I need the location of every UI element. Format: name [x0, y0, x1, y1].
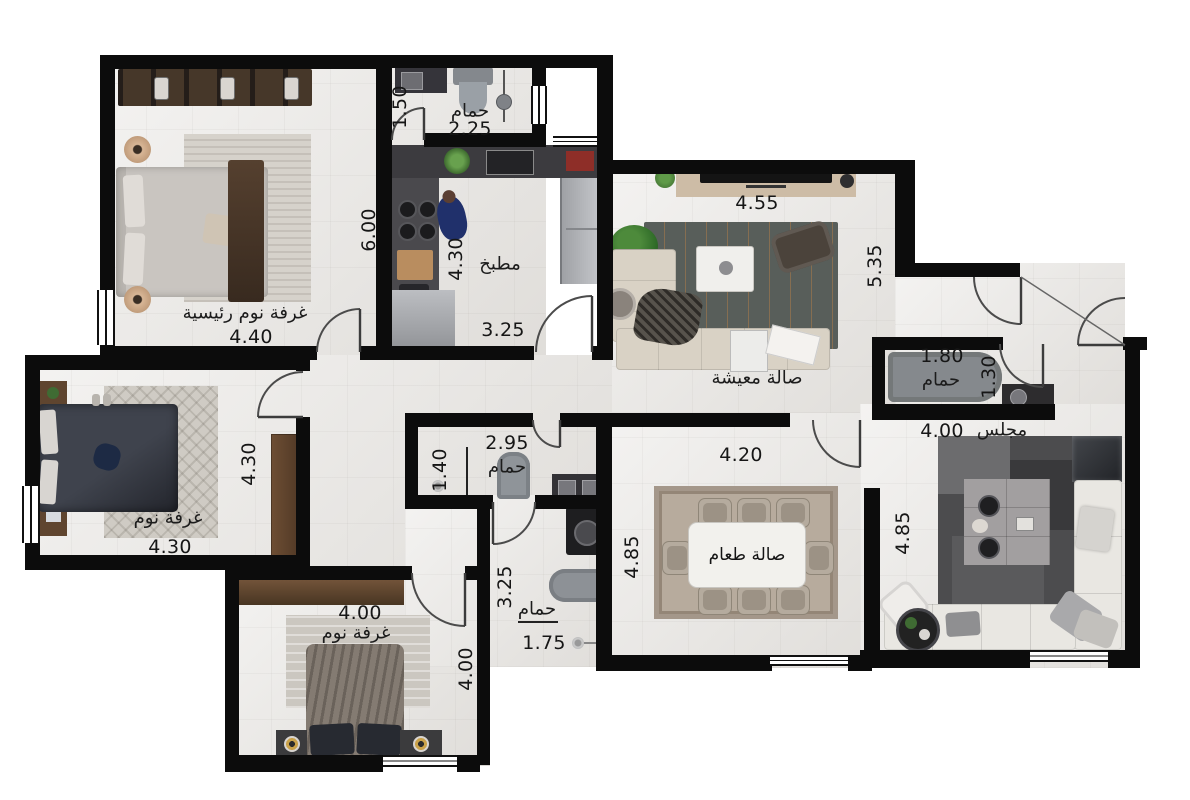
wall [360, 346, 534, 360]
window [97, 290, 115, 345]
dim-kitchen-height: 4.30 [445, 237, 467, 281]
stove-burner [398, 222, 417, 241]
slipper [103, 394, 111, 406]
room-label-bathA: حمام [488, 457, 526, 478]
window [22, 486, 40, 543]
dining-chair [698, 585, 732, 615]
light-shaft [546, 63, 597, 143]
decor-ball [840, 174, 854, 188]
plate [972, 519, 988, 533]
dim-living-width: 4.55 [735, 192, 779, 214]
wall [457, 755, 480, 772]
cushion [91, 441, 123, 473]
fridge-divider [566, 228, 600, 230]
pillow [309, 723, 355, 756]
dim-bathB-height: 3.25 [494, 565, 516, 609]
window [770, 655, 848, 666]
wardrobe-handle [220, 77, 235, 100]
dim-bedroom3-width: 4.00 [338, 602, 382, 624]
dim-bath1-width: 2.25 [448, 118, 492, 140]
dim-bedroom2-width: 4.30 [148, 536, 192, 558]
lamp [284, 736, 300, 752]
wall [860, 650, 1030, 668]
room-label-dining: صالة طعام [709, 545, 786, 565]
dim-living-height: 5.35 [864, 244, 886, 288]
slipper [92, 394, 100, 406]
wall [596, 413, 612, 665]
wardrobe-handle [154, 77, 169, 100]
room-label-kitchen: مطبخ [479, 254, 520, 275]
dining-table: صالة طعام [688, 522, 806, 588]
wall [25, 355, 310, 370]
wall [296, 355, 310, 371]
pillow [123, 175, 146, 228]
dim-bathR-width: 1.80 [920, 345, 964, 367]
coffee-table [696, 246, 754, 292]
wall [872, 404, 1055, 420]
tray [978, 495, 1000, 517]
wall [465, 566, 490, 580]
kitchen-sink [486, 150, 534, 175]
pillow [1075, 506, 1115, 552]
window [531, 86, 547, 124]
stove-burner [418, 222, 437, 241]
wall [592, 346, 613, 360]
kitchen-counter [392, 145, 597, 178]
wall [296, 417, 310, 570]
wall [560, 413, 790, 427]
room-label-master: غرفة نوم رئيسية [183, 303, 308, 324]
dim-bathA-height: 1.40 [429, 448, 451, 492]
bed [38, 404, 178, 512]
ceiling-light-icon [572, 637, 584, 649]
dim-bath1-door: 1.50 [389, 85, 411, 129]
pillow [38, 409, 58, 454]
room-label-majlis: مجلس [977, 420, 1027, 441]
wall [596, 655, 772, 671]
wall [100, 55, 392, 69]
pillow [123, 233, 146, 286]
wall [895, 263, 1020, 277]
pillow [945, 611, 981, 637]
wardrobe-handle [284, 77, 299, 100]
dim-kitchen-width: 3.25 [481, 319, 525, 341]
wardrobe [231, 577, 404, 605]
shower-head-icon [496, 94, 512, 110]
wall [376, 55, 613, 68]
dim-master-width: 4.40 [229, 326, 273, 348]
wall [477, 495, 490, 765]
pillow [356, 723, 402, 756]
wardrobe [118, 69, 312, 106]
wall [405, 413, 418, 505]
plant [905, 617, 917, 629]
serving-tray [566, 151, 594, 171]
window [553, 136, 597, 147]
dim-dining-width: 4.20 [719, 444, 763, 466]
room-label-bedroom2: غرفة نوم [134, 508, 203, 529]
dining-chair [737, 585, 771, 615]
dim-bathA-width: 2.95 [485, 432, 529, 454]
decor [46, 511, 61, 522]
wall [225, 755, 383, 772]
dim-master-height: 6.00 [358, 208, 380, 252]
wall [225, 566, 412, 580]
card [1016, 517, 1034, 531]
wall [597, 55, 613, 360]
stove-burner [398, 200, 417, 219]
dining-chair [804, 541, 834, 575]
dimension-line [518, 621, 558, 623]
pillow [38, 459, 58, 504]
wall [1125, 337, 1140, 668]
window [1030, 650, 1108, 662]
room-label-bedroom3: غرفة نوم [322, 623, 391, 644]
wall [895, 160, 915, 277]
dim-bathR-height: 1.30 [978, 355, 1000, 399]
wall [848, 655, 872, 671]
dim-majlis-height: 4.85 [892, 511, 914, 555]
dim-bathB-width: 1.75 [522, 632, 566, 654]
side-table [730, 330, 768, 372]
dimension-line [466, 447, 468, 495]
window [383, 755, 457, 767]
dim-bedroom3-height: 4.00 [455, 647, 477, 691]
dishwasher [392, 290, 455, 354]
wall [225, 566, 239, 772]
wall [1108, 650, 1140, 668]
lamp [413, 736, 429, 752]
round-table [896, 608, 940, 652]
dining-chair [776, 585, 810, 615]
lamp [124, 286, 151, 313]
stove-burner [418, 200, 437, 219]
wall [864, 488, 880, 668]
tv-stand [746, 185, 786, 188]
room-label-bathR: حمام [922, 370, 960, 391]
marble-console [1072, 436, 1122, 482]
dim-majlis-width: 4.00 [920, 420, 964, 442]
lamp [124, 136, 151, 163]
decor [719, 261, 733, 275]
wall [600, 160, 915, 174]
wall [535, 495, 612, 509]
dim-bedroom2-height: 4.30 [238, 442, 260, 486]
tray [978, 537, 1000, 559]
decor [919, 629, 930, 640]
plant [444, 148, 470, 174]
wall [405, 413, 533, 427]
floor-seating-mat [964, 479, 1050, 565]
bed-runner [228, 160, 264, 302]
room-label-living: صالة معيشة [711, 368, 802, 389]
floor-plan: صالة طعام [0, 0, 1190, 800]
dim-dining-height: 4.85 [621, 535, 643, 579]
plant [47, 387, 59, 399]
cutting-board [397, 250, 433, 280]
room-label-bathB: حمام [518, 599, 556, 620]
